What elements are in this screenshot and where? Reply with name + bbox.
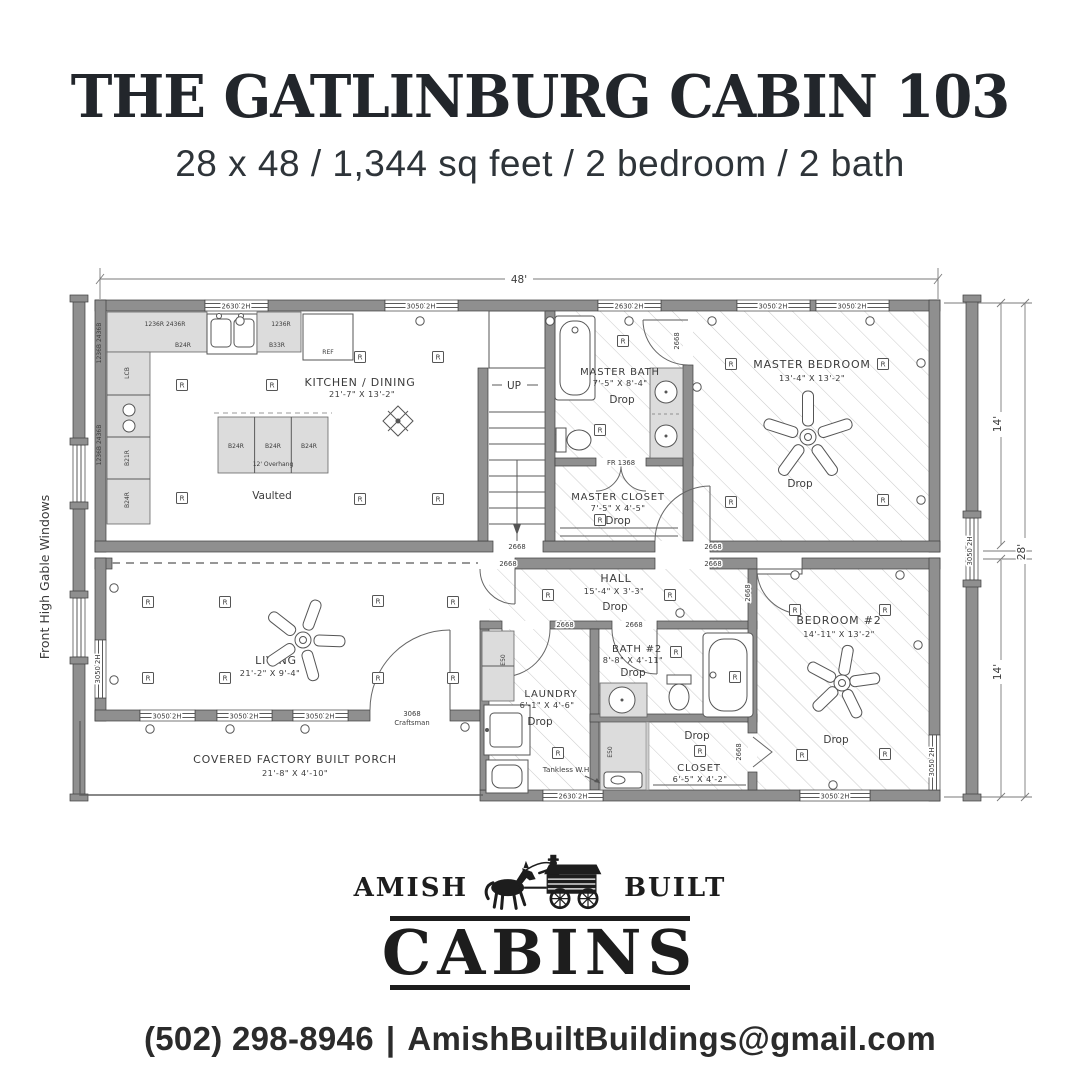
closet2-size: 6'-5" X 4'-2": [673, 774, 728, 784]
hall-name: HALL: [600, 572, 631, 585]
svg-text:3050 2H: 3050 2H: [94, 655, 102, 684]
stairs-up-label: UP: [507, 380, 521, 392]
svg-text:R: R: [698, 748, 703, 756]
dim-lower-depth: 14': [992, 664, 1004, 680]
kitchen-size: 21'-7" X 13'-2": [329, 389, 395, 399]
bedroom2-ceiling: Drop: [823, 734, 849, 746]
svg-text:R: R: [270, 382, 275, 390]
master-bath-size: 7'-5" X 8'-4": [593, 378, 648, 388]
svg-text:3050 2H: 3050 2H: [153, 713, 182, 721]
window-2630: 2630 2H: [598, 300, 661, 311]
master-bedroom-ceiling: Drop: [787, 478, 813, 490]
svg-text:3050 2H: 3050 2H: [759, 303, 788, 311]
svg-text:R: R: [146, 675, 151, 683]
door-label: 2668: [704, 560, 721, 568]
svg-text:R: R: [883, 607, 888, 615]
hall-ceiling: Drop: [602, 601, 628, 613]
cabinet-label: 1236R 2436R: [145, 321, 186, 328]
flyer-page: THE GATLINBURG CABIN 103 28 x 48 / 1,344…: [0, 0, 1080, 1080]
svg-text:R: R: [800, 752, 805, 760]
svg-text:3050 2H: 3050 2H: [306, 713, 335, 721]
email-address: AmishBuiltBuildings@gmail.com: [407, 1020, 936, 1057]
living: LIVING 21'-2" X 9'-4": [240, 599, 345, 682]
bedroom2-size: 14'-11" X 13'-2": [803, 629, 875, 639]
living-size: 21'-2" X 9'-4": [240, 668, 300, 678]
laundry-name: LAUNDRY: [524, 689, 577, 700]
kitchen-ceiling: Vaulted: [252, 490, 292, 502]
bath2-name: BATH #2: [612, 644, 662, 655]
svg-text:R: R: [358, 354, 363, 362]
page-title: THE GATLINBURG CABIN 103: [0, 62, 1080, 131]
cabinet-label: B24R: [175, 342, 191, 349]
front-gable-note: Front High Gable Windows: [37, 495, 52, 660]
door-label: 2668: [508, 543, 525, 551]
fan-light-icon: [383, 406, 413, 436]
door-label: 2668: [556, 621, 573, 629]
svg-text:R: R: [180, 495, 185, 503]
french-door-label: FR 1368: [607, 459, 635, 467]
front-door-label: 3068: [403, 710, 420, 718]
svg-text:R: R: [733, 674, 738, 682]
laundry-size: 6'-1" X 4'-6": [520, 700, 575, 710]
window-3050: 3050 2H: [816, 300, 889, 311]
cabinet-label: 1236B 2436B: [96, 323, 103, 364]
cabinet-label: B33R: [269, 342, 285, 349]
svg-text:R: R: [223, 675, 228, 683]
logo-word-built: BUILT: [624, 873, 726, 903]
svg-text:R: R: [556, 750, 561, 758]
svg-text:3050 2H: 3050 2H: [821, 793, 850, 801]
door-label: 2668: [499, 560, 516, 568]
master-closet-ceiling: Drop: [605, 515, 631, 527]
company-logo: AMISH: [0, 853, 1080, 990]
door-label: 2668: [625, 621, 642, 629]
cabinet-label: 1236B 2436B: [96, 425, 103, 466]
svg-text:R: R: [451, 675, 456, 683]
stair-arrow: [513, 524, 521, 535]
cabinet-label: B21R: [124, 450, 131, 466]
horse-and-wagon-icon: [476, 853, 616, 915]
door-label: 2668: [673, 332, 681, 349]
tankless-note: Tankless W.H: [542, 765, 589, 774]
window-3050: 3050 2H: [94, 640, 106, 698]
cabinet-label: 1236R: [271, 321, 290, 328]
dim-overall-width: 48': [511, 274, 527, 286]
door-label: 2668: [744, 584, 752, 601]
contact-separator: |: [386, 1020, 396, 1057]
svg-text:R: R: [793, 607, 798, 615]
window-label: 3050 2H: [966, 537, 974, 566]
laundry-ceiling: Drop: [527, 716, 553, 728]
svg-text:3050 2H: 3050 2H: [230, 713, 259, 721]
window-3050: 3050 2H: [385, 300, 458, 311]
window-3050: 3050 2H: [800, 790, 870, 801]
svg-text:R: R: [674, 649, 679, 657]
svg-text:2630 2H: 2630 2H: [615, 303, 644, 311]
bedroom2-name: BEDROOM #2: [796, 614, 881, 627]
window-3050: 3050 2H: [737, 300, 810, 311]
logo-word-amish: AMISH: [354, 873, 468, 903]
porch-size: 21'-8" X 4'-10": [262, 768, 328, 778]
kitchen-name: KITCHEN / DINING: [304, 376, 415, 389]
island-cab: B24R: [228, 443, 244, 450]
master-bath-ceiling: Drop: [609, 394, 635, 406]
svg-text:R: R: [881, 361, 886, 369]
svg-text:R: R: [376, 675, 381, 683]
master-closet-name: MASTER CLOSET: [571, 492, 665, 503]
kitchen: 1236R 2436R 1236R B24R B33R REF LCB B21R…: [96, 312, 416, 524]
svg-text:R: R: [729, 499, 734, 507]
master-closet-size: 7'-5" X 4'-5": [591, 503, 646, 513]
island-note: 12' Overhang: [253, 461, 294, 468]
dim-overall-depth: 28': [1016, 544, 1028, 560]
svg-text:R: R: [598, 517, 603, 525]
floor-plan: 48' 14' 28' 14': [30, 255, 1050, 840]
logo-word-cabins: CABINS: [0, 921, 1080, 984]
island-cab: B24R: [301, 443, 317, 450]
cabinet-label: E50: [607, 746, 614, 758]
window-3050: 3050 2H: [293, 710, 348, 721]
window-3050: 3050 2H: [928, 735, 940, 790]
svg-text:R: R: [223, 599, 228, 607]
svg-text:R: R: [621, 338, 626, 346]
svg-text:R: R: [668, 592, 673, 600]
hall-size: 15'-4" X 3'-3": [584, 586, 644, 596]
svg-text:R: R: [436, 354, 441, 362]
closet2-ceiling: Drop: [684, 730, 710, 742]
window-2630: 2630 2H: [543, 790, 603, 801]
svg-text:R: R: [881, 497, 886, 505]
dim-upper-depth: 14': [992, 416, 1004, 432]
svg-text:R: R: [546, 592, 551, 600]
cabinet-label: E50: [500, 654, 507, 666]
svg-text:2630 2H: 2630 2H: [559, 793, 588, 801]
svg-text:R: R: [180, 382, 185, 390]
stairs: UP: [489, 311, 545, 541]
svg-text:R: R: [358, 496, 363, 504]
window-2630: 2630 2H: [205, 300, 268, 311]
window-3050: 3050 2H: [140, 710, 195, 721]
bath2-ceiling: Drop: [620, 667, 646, 679]
door-label: 2668: [735, 743, 743, 760]
master-bedroom-name: MASTER BEDROOM: [753, 358, 870, 371]
svg-text:R: R: [451, 599, 456, 607]
bath2-size: 8'-8" X 4'-11": [603, 655, 663, 665]
svg-text:3050 2H: 3050 2H: [407, 303, 436, 311]
ref-label: REF: [322, 349, 334, 356]
door-label: 2668: [704, 543, 721, 551]
svg-text:R: R: [436, 496, 441, 504]
svg-text:3050 2H: 3050 2H: [838, 303, 867, 311]
front-door-style: Craftsman: [394, 719, 429, 727]
svg-text:R: R: [729, 361, 734, 369]
page-subtitle: 28 x 48 / 1,344 sq feet / 2 bedroom / 2 …: [0, 143, 1080, 185]
porch: COVERED FACTORY BUILT PORCH 21'-8" X 4'-…: [80, 721, 483, 795]
svg-text:3050 2H: 3050 2H: [928, 748, 936, 777]
contact-line: (502) 298-8946|AmishBuiltBuildings@gmail…: [0, 1020, 1080, 1058]
cabinet-label: B24R: [124, 492, 131, 508]
right-gable-wall: 3050 2H: [963, 295, 981, 801]
svg-text:2630 2H: 2630 2H: [222, 303, 251, 311]
island-cab: B24R: [265, 443, 281, 450]
svg-text:R: R: [883, 751, 888, 759]
phone-number: (502) 298-8946: [144, 1020, 374, 1057]
svg-text:R: R: [598, 427, 603, 435]
cabinet-label: LCB: [124, 367, 131, 379]
window-3050: 3050 2H: [217, 710, 272, 721]
master-bedroom-size: 13'-4" X 13'-2": [779, 373, 845, 383]
porch-name: COVERED FACTORY BUILT PORCH: [193, 753, 397, 766]
closet2-name: CLOSET: [677, 763, 721, 774]
svg-text:R: R: [146, 599, 151, 607]
master-bath-name: MASTER BATH: [580, 367, 660, 378]
svg-text:R: R: [376, 598, 381, 606]
